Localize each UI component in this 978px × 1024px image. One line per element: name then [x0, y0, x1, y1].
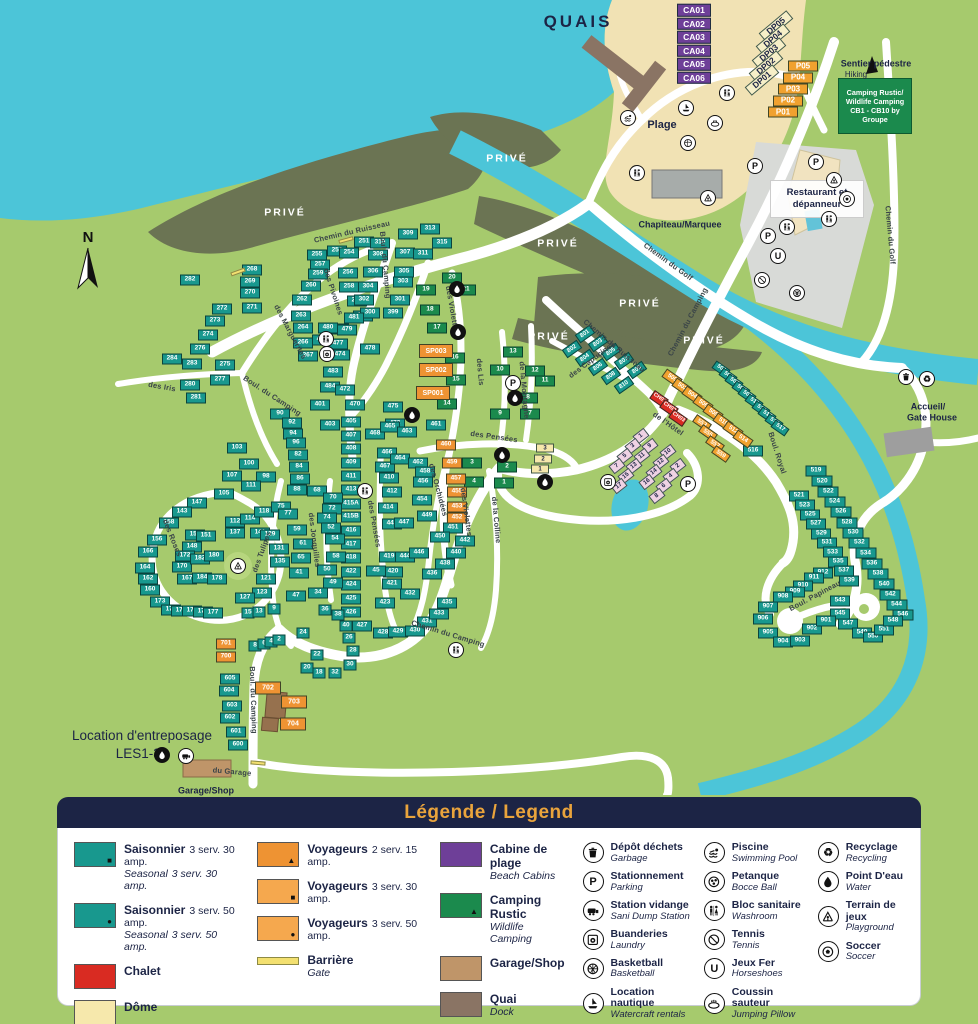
wc-icon [719, 85, 735, 101]
water-icon [494, 447, 510, 463]
lot-260: 260 [301, 281, 321, 292]
area-label: Sentier pédestre [841, 59, 912, 68]
lot-2: 2 [273, 635, 286, 646]
lot-13: 13 [503, 347, 523, 358]
area-label: QUAIS [544, 13, 613, 31]
lot-301: 301 [390, 295, 410, 306]
lot-450: 450 [430, 532, 450, 543]
lot-65: 65 [291, 553, 311, 564]
area-label: Location d'entreposage [72, 729, 212, 743]
legend-icon-text: TennisTennis [732, 929, 765, 951]
lot-P04: P04 [783, 72, 813, 83]
water-icon [537, 474, 553, 490]
lot-CA03: CA03 [677, 31, 711, 44]
lot-604: 604 [219, 686, 239, 697]
legend-entry-text: Voyageurs3 serv. 30 amp. [307, 879, 426, 905]
lot-435: 435 [437, 598, 457, 609]
legend-entry-text: Voyageurs3 serv. 50 amp. [307, 916, 426, 942]
legend-swatch [74, 1000, 116, 1024]
legend-icon-column-3: ♻RecyclageRecyclingPoint D'eauWaterTerra… [818, 842, 910, 997]
legend-icon-entry: Bloc sanitaireWashroom [704, 900, 804, 922]
legend-icon-entry: UJeux FerHorseshoes [704, 958, 804, 980]
lot-304: 304 [358, 282, 378, 293]
legend-icon-entry: Location nautiqueWatercraft rentals [583, 987, 690, 1021]
boat-icon [678, 100, 694, 116]
legend-entry: ▲Voyageurs2 serv. 15 amp. [257, 842, 426, 868]
lot-123: 123 [252, 588, 272, 599]
legend-icon-entry: BasketballBasketball [583, 958, 690, 980]
lot-421: 421 [382, 579, 402, 590]
private-area-label: PRIVÉ [537, 238, 579, 249]
play-icon [826, 172, 842, 188]
wc-icon [779, 219, 795, 235]
swim-icon [620, 110, 636, 126]
lot-440: 440 [446, 548, 466, 559]
wildlife-camping-box: Camping Rustic/ Wildlife Camping CB1 - C… [838, 78, 912, 134]
lot-P05: P05 [788, 61, 818, 72]
lot-457: 457 [446, 474, 466, 485]
lot-479: 479 [337, 325, 357, 336]
legend-icon-text: BuanderiesLaundry [611, 929, 668, 951]
legend-icon-entry: Point D'eauWater [818, 871, 910, 893]
lot-164: 164 [135, 563, 155, 574]
lot-409: 409 [341, 457, 361, 468]
legend-icon-text: Jeux FerHorseshoes [732, 958, 783, 980]
map-terrain [0, 0, 978, 795]
wc-icon [318, 331, 334, 347]
cb-box-line3: CB1 - CB10 by Groupe [839, 106, 911, 124]
lot-SP003: SP003 [419, 344, 453, 358]
legend-swatch: ▲ [440, 893, 482, 918]
legend-entry-text: Saisonnier3 serv. 50 amp.Seasonal3 serv.… [124, 903, 243, 953]
legend-icon-entry: Station vidangeSani Dump Station [583, 900, 690, 922]
lot-309: 309 [398, 229, 418, 240]
legend-swatch: ▲ [257, 842, 299, 867]
lot-CA06: CA06 [677, 71, 711, 84]
legend-icon-column-1: Dépôt déchetsGarbagePStationnementParkin… [583, 842, 690, 997]
cb-box-line1: Camping Rustic/ [839, 88, 911, 97]
lot-302: 302 [354, 295, 374, 306]
legend-icon-entry: SoccerSoccer [818, 941, 910, 963]
park-icon: P [505, 375, 521, 391]
lot-3: 3 [536, 444, 554, 453]
lot-107: 107 [222, 471, 242, 482]
legend-icon-text: Terrain de jeuxPlayground [846, 900, 910, 934]
lot-277: 277 [210, 375, 230, 386]
legend-swatch [440, 956, 482, 981]
lot-423: 423 [375, 598, 395, 609]
legend-entry: ■Saisonnier3 serv. 30 amp.Seasonal3 serv… [74, 842, 243, 892]
lot-481: 481 [344, 313, 364, 324]
lot-256: 256 [338, 268, 358, 279]
private-area-label: PRIVÉ [264, 207, 306, 218]
recycle-icon: ♻ [919, 371, 935, 387]
street-label: Boul. du Camping [248, 666, 258, 734]
legend-icon-entry: TennisTennis [704, 929, 804, 951]
legend-icon-entry: PStationnementParking [583, 871, 690, 893]
lot-470: 470 [345, 400, 365, 411]
pillow-icon [704, 993, 725, 1014]
lot-82: 82 [288, 450, 308, 461]
legend-icon-text: PetanqueBocce Ball [732, 871, 779, 893]
lot-254: 254 [339, 248, 359, 259]
lot-9: 9 [268, 604, 281, 615]
legend-swatch-column-1: ■Saisonnier3 serv. 30 amp.Seasonal3 serv… [74, 842, 243, 997]
lot-18: 18 [313, 668, 326, 679]
legend-icon-text: BasketballBasketball [611, 958, 664, 980]
legend-swatch [440, 992, 482, 1017]
area-label: Gate House [907, 413, 957, 422]
legend-icon-entry: BuanderiesLaundry [583, 929, 690, 951]
lot-CA01: CA01 [677, 4, 711, 17]
lot-127: 127 [235, 593, 255, 604]
lot-52: 52 [321, 523, 341, 534]
wc-icon [704, 900, 725, 921]
lot-284: 284 [162, 354, 182, 365]
lot-422: 422 [341, 566, 361, 577]
sani-icon [583, 900, 604, 921]
lot-315: 315 [432, 238, 452, 249]
map-canvas: Restaurant et dépanneur Camping Rustic/ … [0, 0, 978, 795]
lot-433: 433 [429, 609, 449, 620]
private-area-label: PRIVÉ [619, 298, 661, 309]
area-label: Chapiteau/Marquee [638, 220, 721, 229]
lot-54: 54 [325, 534, 345, 545]
legend-icon-text: Bloc sanitaireWashroom [732, 900, 801, 922]
wc-icon [821, 211, 837, 227]
lot-460: 460 [436, 440, 456, 451]
private-area-label: PRIVÉ [486, 153, 528, 164]
play-icon [818, 906, 839, 927]
lot-105: 105 [214, 489, 234, 500]
lot-166: 166 [138, 547, 158, 558]
lot-88: 88 [287, 485, 307, 496]
lot-143: 143 [172, 507, 192, 518]
tennis-icon [704, 929, 725, 950]
lot-427: 427 [352, 621, 372, 632]
lot-180: 180 [204, 551, 224, 562]
soccer-icon [839, 191, 855, 207]
lot-P03: P03 [778, 84, 808, 95]
legend-entry: Garage/Shop [440, 956, 569, 981]
legend-header: Légende / Legend [57, 797, 921, 828]
lot-311: 311 [413, 249, 433, 260]
lot-1: 1 [494, 478, 514, 489]
laundry-icon [600, 474, 616, 490]
lot-438: 438 [435, 559, 455, 570]
lot-9: 9 [490, 409, 510, 420]
recycle-icon: ♻ [818, 842, 839, 863]
legend-swatch: ■ [74, 842, 116, 867]
legend-icon-entry: ♻RecyclageRecycling [818, 842, 910, 864]
lot-903: 903 [790, 636, 810, 647]
lot-96: 96 [286, 438, 306, 449]
legend-entry: ▲Camping RusticWildlife Camping [440, 893, 569, 945]
legend-swatch-column-2: ▲Voyageurs2 serv. 15 amp.■Voyageurs3 ser… [257, 842, 426, 997]
basket-icon [789, 285, 805, 301]
lot-30: 30 [344, 660, 357, 671]
trash-icon [583, 842, 604, 863]
street-label: des Lis [475, 358, 485, 386]
lot-313: 313 [420, 224, 440, 235]
legend-entry-text: Saisonnier3 serv. 30 amp.Seasonal3 serv.… [124, 842, 243, 892]
lot-17: 17 [427, 323, 447, 334]
lot-274: 274 [198, 330, 218, 341]
lot-36: 36 [319, 605, 332, 616]
lot-34: 34 [308, 588, 328, 599]
park-icon: P [583, 871, 604, 892]
lot-262: 262 [292, 295, 312, 306]
legend-icon-text: Location nautiqueWatercraft rentals [611, 987, 690, 1021]
lot-303: 303 [393, 277, 413, 288]
lot-4: 4 [464, 477, 484, 488]
area-label: Garage/Shop [178, 786, 234, 795]
park-icon: P [680, 476, 696, 492]
legend-swatch: ● [257, 916, 299, 941]
laundry-icon [319, 346, 335, 362]
private-area-label: PRIVÉ [683, 335, 725, 346]
legend-icon-entry: PiscineSwimming Pool [704, 842, 804, 864]
lot-162: 162 [138, 574, 158, 585]
lot-272: 272 [212, 304, 232, 315]
lot-178: 178 [207, 574, 227, 585]
lot-603: 603 [222, 701, 242, 712]
lot-424: 424 [341, 580, 361, 591]
roundabout [777, 608, 803, 634]
legend-entry: ●Saisonnier3 serv. 50 amp.Seasonal3 serv… [74, 903, 243, 953]
lot-415A: 415A [341, 498, 361, 509]
lot-410: 410 [379, 473, 399, 484]
lot-412: 412 [382, 487, 402, 498]
lot-906: 906 [753, 614, 773, 625]
park-icon: P [808, 154, 824, 170]
legend-swatch: ● [74, 903, 116, 928]
legend-icon-text: Station vidangeSani Dump Station [611, 900, 690, 922]
water-icon [450, 324, 466, 340]
legend-entry: QuaiDock [440, 992, 569, 1018]
area-label: N [83, 230, 94, 246]
lot-137: 137 [225, 528, 245, 539]
legend-icon-text: Point D'eauWater [846, 871, 903, 893]
legend-swatch [74, 964, 116, 989]
lot-270: 270 [240, 288, 260, 299]
lot-26: 26 [343, 633, 356, 644]
lot-478: 478 [360, 344, 380, 355]
legend-icon-text: SoccerSoccer [846, 941, 881, 963]
lot-704: 704 [280, 718, 306, 731]
legend-entry-text: BarrièreGate [307, 953, 353, 979]
lot-420: 420 [383, 567, 403, 578]
legend-icon-text: StationnementParking [611, 871, 684, 893]
lot-70: 70 [323, 493, 343, 504]
lot-18: 18 [420, 305, 440, 316]
legend-entry: BarrièreGate [257, 953, 426, 979]
legend-title: Légende / Legend [404, 802, 574, 824]
lot-258: 258 [339, 282, 359, 293]
legend-entry-text: Camping RusticWildlife Camping [490, 893, 569, 945]
lot-121: 121 [256, 574, 276, 585]
trash-icon [898, 369, 914, 385]
legend-icon-text: PiscineSwimming Pool [732, 842, 797, 864]
lot-P01: P01 [768, 107, 798, 118]
lot-SP002: SP002 [419, 363, 453, 377]
legend-panel: Légende / Legend ■Saisonnier3 serv. 30 a… [57, 797, 921, 1011]
lot-405: 405 [341, 417, 361, 428]
lot-40: 40 [340, 621, 353, 632]
lot-P02: P02 [773, 95, 803, 106]
lot-24: 24 [297, 628, 310, 639]
lot-600: 600 [228, 740, 248, 751]
legend-swatch-column-3: Cabine de plageBeach Cabins▲Camping Rust… [440, 842, 569, 997]
private-area-label: PRIVÉ [528, 331, 570, 342]
lot-CA04: CA04 [677, 44, 711, 57]
lot-543: 543 [830, 596, 850, 607]
lot-459: 459 [442, 458, 462, 469]
lot-283: 283 [182, 359, 202, 370]
lot-454: 454 [412, 495, 432, 506]
lot-38: 38 [332, 610, 345, 621]
wc-icon [448, 642, 464, 658]
lot-432: 432 [400, 589, 420, 600]
horse-icon: U [704, 958, 725, 979]
sani-icon [178, 748, 194, 764]
lot-407: 407 [341, 430, 361, 441]
lot-702: 702 [255, 682, 281, 695]
legend-entry: Cabine de plageBeach Cabins [440, 842, 569, 882]
lot-45: 45 [366, 566, 386, 577]
park-icon: P [747, 158, 763, 174]
lot-307: 307 [395, 248, 415, 259]
campground-map-page: Restaurant et dépanneur Camping Rustic/ … [0, 0, 978, 1024]
lot-77: 77 [278, 509, 298, 520]
park-icon: P [760, 228, 776, 244]
basket-icon [583, 958, 604, 979]
lot-446: 446 [409, 548, 429, 559]
area-label: Plage [647, 120, 676, 132]
lot-14: 14 [437, 399, 457, 410]
soccer-icon [818, 941, 839, 962]
lot-306: 306 [363, 267, 383, 278]
lot-414: 414 [378, 503, 398, 514]
lot-84: 84 [289, 462, 309, 473]
lot-20: 20 [301, 663, 314, 674]
lot-901: 901 [816, 616, 836, 627]
lot-111: 111 [241, 481, 261, 492]
lot-399: 399 [383, 308, 403, 319]
legend-icon-text: RecyclageRecycling [846, 842, 898, 864]
legend-icon-entry: Terrain de jeuxPlayground [818, 900, 910, 934]
cb-box-line2: Wildlife Camping [839, 97, 911, 106]
legend-entry: ■Voyageurs3 serv. 30 amp. [257, 879, 426, 905]
lot-47: 47 [286, 591, 306, 602]
lot-273: 273 [205, 316, 225, 327]
pillow-icon [707, 115, 723, 131]
legend-entry-text: Cabine de plageBeach Cabins [490, 842, 569, 882]
legend-entry-text: Chalet [124, 964, 161, 978]
lot-282: 282 [180, 275, 200, 286]
boat-icon [583, 993, 604, 1014]
legend-icon-column-2: PiscineSwimming PoolPetanqueBocce BallBl… [704, 842, 804, 997]
lot-703: 703 [281, 696, 307, 709]
legend-entry-text: Dôme [124, 1000, 157, 1014]
lot-408: 408 [341, 444, 361, 455]
swim-icon [704, 842, 725, 863]
legend-entry: ●Voyageurs3 serv. 50 amp. [257, 916, 426, 942]
horse-icon: U [770, 248, 786, 264]
lot-CA02: CA02 [677, 17, 711, 30]
play-icon [700, 190, 716, 206]
lot-2: 2 [534, 455, 552, 464]
legend-icon-text: Dépôt déchetsGarbage [611, 842, 683, 864]
play-icon [230, 558, 246, 574]
lot-281: 281 [186, 393, 206, 404]
lot-271: 271 [242, 303, 262, 314]
lot-13: 13 [253, 607, 266, 618]
lot-275: 275 [215, 360, 235, 371]
legend-swatch [257, 957, 299, 965]
lot-701: 701 [216, 639, 236, 650]
lot-700: 700 [216, 652, 236, 663]
legend-icon-entry: PetanqueBocce Ball [704, 871, 804, 893]
wc-icon [629, 165, 645, 181]
lot-601: 601 [226, 727, 246, 738]
lot-483: 483 [323, 367, 343, 378]
lot-131: 131 [269, 544, 289, 555]
lot-CA05: CA05 [677, 58, 711, 71]
water-icon [507, 390, 523, 406]
lot-425: 425 [341, 593, 361, 604]
lot-11: 11 [535, 376, 555, 387]
area-label: Accueil/ [911, 402, 946, 411]
legend-swatch [440, 842, 482, 867]
lot-32: 32 [329, 668, 342, 679]
lot-177: 177 [203, 608, 223, 619]
lot-19: 19 [416, 285, 436, 296]
lot-415B: 415B [341, 512, 361, 523]
lot-403: 403 [320, 420, 340, 431]
volley-icon [680, 135, 696, 151]
legend-entry-text: Garage/Shop [490, 956, 565, 970]
lot-160: 160 [140, 585, 160, 596]
legend-icon-entry: Coussin sauteurJumping Pillow [704, 987, 804, 1021]
lot-280: 280 [180, 380, 200, 391]
lot-58: 58 [326, 552, 346, 563]
water-icon [449, 281, 465, 297]
lot-548: 548 [883, 616, 903, 627]
area-label: Hiking [845, 71, 867, 79]
lot-10: 10 [490, 365, 510, 376]
lot-463: 463 [397, 427, 417, 438]
legend-entry: Chalet [74, 964, 243, 989]
lot-605: 605 [220, 674, 240, 685]
lot-SP001: SP001 [416, 386, 450, 400]
lot-436: 436 [422, 569, 442, 580]
bocce-icon [704, 871, 725, 892]
lot-907: 907 [758, 602, 778, 613]
lot-472: 472 [335, 385, 355, 396]
lot-28: 28 [347, 646, 360, 657]
legend-entry: Dôme [74, 1000, 243, 1024]
water-icon [154, 747, 170, 763]
lot-1: 1 [531, 465, 549, 474]
lot-411: 411 [341, 471, 361, 482]
lot-276: 276 [190, 344, 210, 355]
legend-entry-text: Voyageurs2 serv. 15 amp. [307, 842, 426, 868]
laundry-icon [583, 929, 604, 950]
legend-body: ■Saisonnier3 serv. 30 amp.Seasonal3 serv… [57, 828, 921, 1006]
lot-447: 447 [394, 518, 414, 529]
lot-449: 449 [417, 511, 437, 522]
